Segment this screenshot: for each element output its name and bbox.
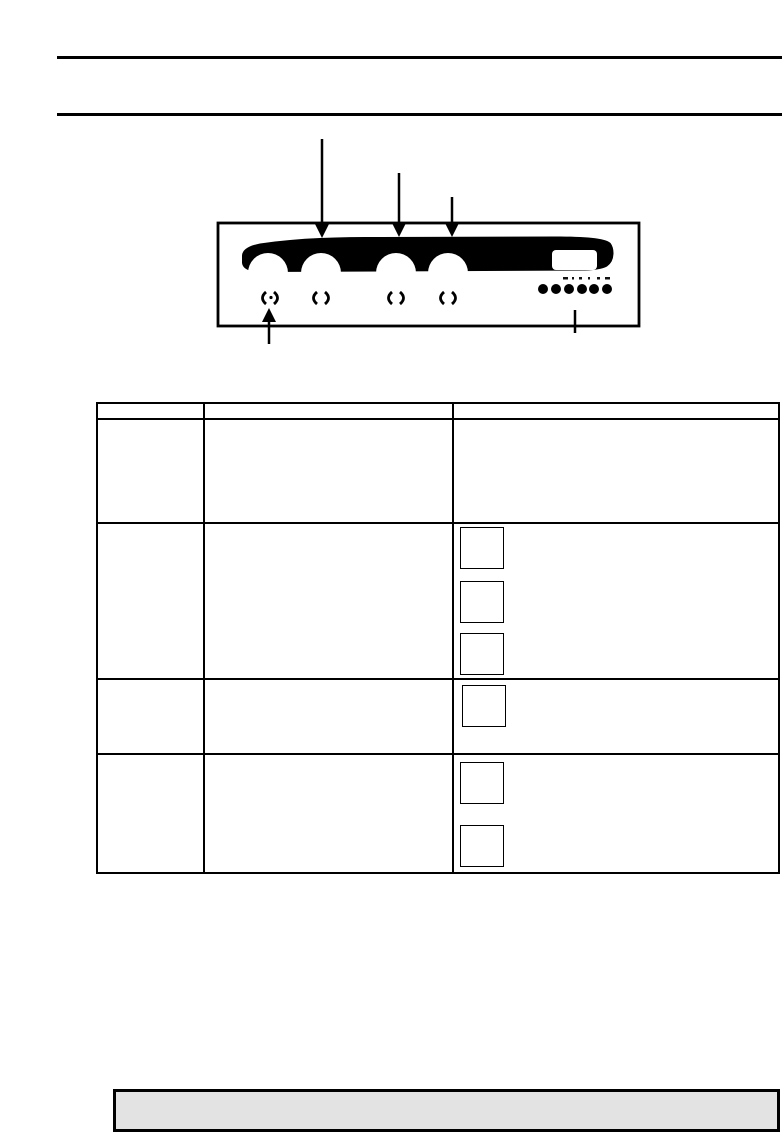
- knob-indicator-mark: [389, 292, 393, 304]
- knob-indicator-dot: [269, 296, 272, 299]
- document-page: [0, 0, 782, 1134]
- table-row-divider: [98, 522, 778, 524]
- table-column-divider: [452, 404, 454, 872]
- panel-button: [577, 284, 587, 294]
- icon-placeholder-box: [460, 527, 504, 569]
- icon-placeholder-box: [460, 762, 504, 804]
- table-row-divider: [98, 678, 778, 680]
- control-panel-band: [242, 237, 614, 273]
- burner-knob-cutout: [248, 253, 288, 293]
- burner-knob-cutout: [301, 253, 341, 293]
- burner-knob-cutout: [376, 253, 416, 293]
- callout-arrowhead: [445, 223, 459, 237]
- icon-placeholder-box: [462, 685, 506, 727]
- table: [96, 402, 780, 874]
- button-label-mark: [605, 277, 610, 280]
- icon-placeholder-box: [460, 633, 504, 675]
- button-label-mark: [597, 277, 600, 280]
- panel-button: [602, 284, 612, 294]
- panel-button: [564, 284, 574, 294]
- knob-indicator-mark: [314, 292, 318, 304]
- button-label-mark: [563, 277, 568, 280]
- callout-arrowhead: [262, 308, 276, 322]
- panel-button: [538, 284, 548, 294]
- display-window: [552, 250, 597, 270]
- callout-arrowhead: [315, 224, 329, 238]
- icon-placeholder-box: [460, 825, 504, 867]
- button-label-mark: [572, 277, 574, 280]
- table-column-divider: [203, 404, 205, 872]
- table-row-divider: [98, 753, 778, 755]
- button-label-mark: [588, 277, 590, 280]
- panel-button: [551, 284, 561, 294]
- horizontal-rule: [57, 113, 782, 116]
- button-label-mark: [579, 277, 582, 280]
- icon-placeholder-box: [460, 581, 504, 623]
- control-panel-figure: [0, 0, 782, 400]
- knob-indicator-mark: [441, 292, 445, 304]
- horizontal-rule: [57, 56, 782, 59]
- callout-arrowhead: [392, 223, 406, 237]
- knob-indicator-mark: [263, 292, 267, 304]
- knob-indicator-mark: [400, 292, 404, 304]
- knob-indicator-mark: [452, 292, 456, 304]
- note-box: [113, 1089, 780, 1132]
- table-row-divider: [98, 418, 778, 420]
- knob-indicator-mark: [274, 292, 278, 304]
- panel-frame: [218, 223, 639, 326]
- burner-knob-cutout: [428, 253, 468, 293]
- panel-button: [589, 284, 599, 294]
- knob-indicator-mark: [325, 292, 329, 304]
